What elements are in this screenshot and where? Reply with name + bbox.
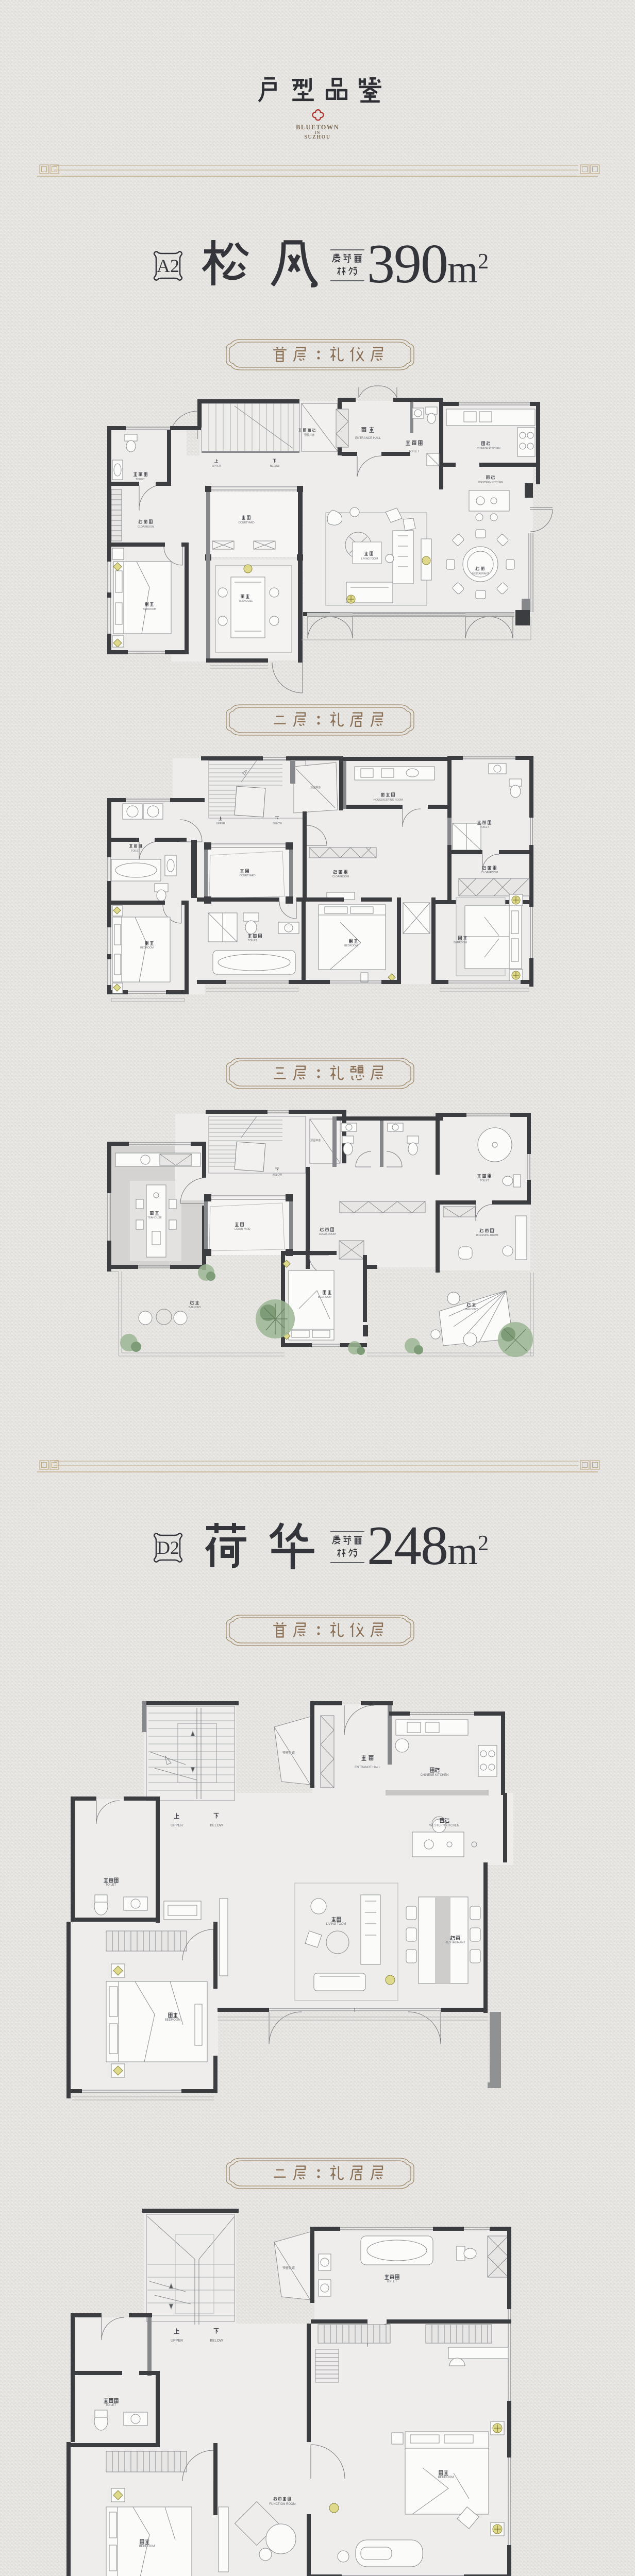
svg-text:预留井道: 预留井道	[310, 1139, 321, 1142]
svg-text:CLOAKROOM: CLOAKROOM	[332, 875, 349, 878]
svg-text:TEAHOUSE: TEAHOUSE	[147, 1216, 162, 1219]
svg-text:RESTAURANT: RESTAURANT	[445, 1941, 466, 1944]
svg-text:预留井道: 预留井道	[282, 1751, 295, 1755]
svg-text:A2: A2	[157, 256, 179, 276]
svg-text:BELOW: BELOW	[270, 465, 279, 468]
svg-text:COURTYARD: COURTYARD	[239, 874, 256, 877]
svg-text:TOILET: TOILET	[248, 939, 257, 942]
svg-text:TEAHOUSE: TEAHOUSE	[239, 600, 253, 603]
svg-text:BALCONY: BALCONY	[189, 1306, 202, 1309]
svg-text:TOILET: TOILET	[131, 850, 140, 853]
svg-text:RESTAURANT: RESTAURANT	[472, 572, 489, 575]
svg-text:UPPER: UPPER	[171, 1824, 183, 1827]
svg-text:TOILET: TOILET	[480, 1179, 489, 1182]
svg-text:BELOW: BELOW	[273, 1174, 282, 1177]
svg-text:BEDROOM: BEDROOM	[318, 1296, 331, 1299]
svg-text:BEDROOM: BEDROOM	[344, 944, 358, 947]
svg-text:FUNCTION ROOM: FUNCTION ROOM	[269, 2503, 295, 2506]
svg-text:BEDROOM: BEDROOM	[143, 608, 156, 611]
svg-text:BEDROOM: BEDROOM	[454, 941, 467, 944]
svg-text:预留井道: 预留井道	[304, 433, 314, 437]
svg-text:BEDROOM: BEDROOM	[164, 2019, 180, 2022]
svg-text:TOILET: TOILET	[136, 478, 144, 481]
svg-text:CLOAKROOM: CLOAKROOM	[481, 871, 498, 874]
svg-text:CHINESE KITCHEN: CHINESE KITCHEN	[421, 1774, 449, 1777]
svg-text:BELOW: BELOW	[210, 1824, 223, 1827]
svg-text:COURTYARD: COURTYARD	[238, 521, 255, 524]
svg-text:TOILET: TOILET	[106, 1884, 116, 1887]
svg-text:COURTYARD: COURTYARD	[234, 1228, 250, 1231]
svg-text:BALCONY: BALCONY	[465, 1308, 478, 1311]
svg-text:HOUSEKEEPING ROOM: HOUSEKEEPING ROOM	[374, 799, 403, 802]
svg-text:TOILET: TOILET	[387, 2280, 397, 2283]
svg-text:ENTRANCE HALL: ENTRANCE HALL	[355, 437, 381, 440]
svg-text:预留井道: 预留井道	[282, 2266, 295, 2270]
svg-text:CLOAKROOM: CLOAKROOM	[319, 1233, 336, 1236]
svg-text:WESTERN KITCHEN: WESTERN KITCHEN	[429, 1824, 459, 1827]
svg-text:UPPER: UPPER	[171, 2339, 183, 2343]
svg-text:ENTRANCE HALL: ENTRANCE HALL	[355, 1766, 380, 1769]
svg-text:BELOW: BELOW	[273, 822, 282, 825]
svg-text:LIVING TOOM: LIVING TOOM	[361, 557, 378, 561]
svg-text:LIVING TOOM: LIVING TOOM	[326, 1923, 346, 1926]
svg-text:D2: D2	[157, 1537, 179, 1558]
svg-text:CLOAKROOM: CLOAKROOM	[138, 526, 155, 529]
svg-text:WESTERN KITCHEN: WESTERN KITCHEN	[478, 481, 504, 484]
svg-text:CHINESE KITCHEN: CHINESE KITCHEN	[477, 447, 500, 450]
svg-text:BEDROOM: BEDROOM	[438, 2476, 454, 2479]
svg-text:TOILET: TOILET	[106, 2404, 116, 2407]
svg-text:BEDROOM: BEDROOM	[140, 946, 154, 950]
svg-text:TOILET: TOILET	[480, 826, 489, 829]
svg-text:BELOW: BELOW	[210, 2339, 223, 2343]
svg-text:DRESSING ROOM: DRESSING ROOM	[476, 1234, 498, 1237]
svg-text:TOILET: TOILET	[409, 450, 420, 453]
svg-text:UPPER: UPPER	[216, 822, 225, 825]
svg-text:预留井道: 预留井道	[310, 786, 321, 789]
svg-text:BEDROOM: BEDROOM	[139, 2545, 155, 2548]
svg-text:UPPER: UPPER	[212, 465, 221, 468]
